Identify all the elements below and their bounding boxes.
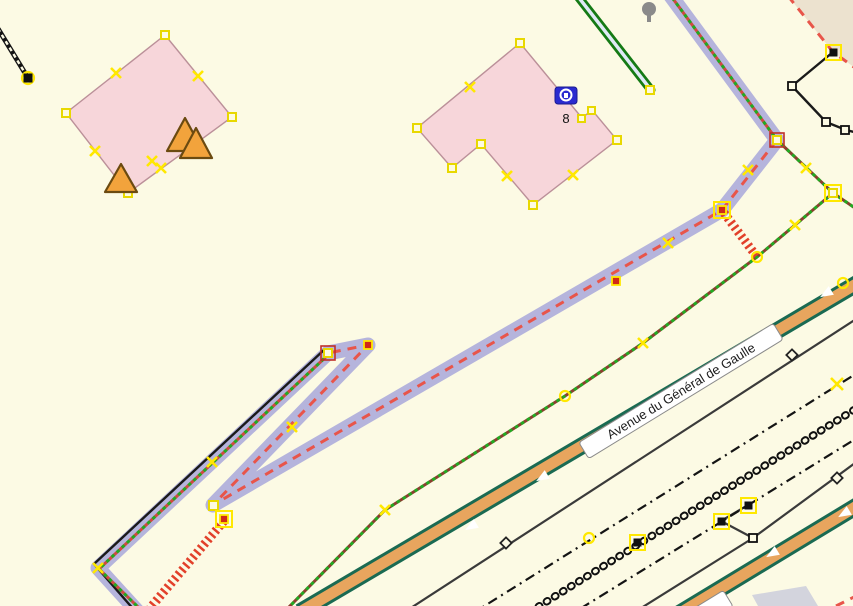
railway-end-node[interactable] <box>22 72 34 84</box>
housenumber-icon[interactable] <box>555 87 577 104</box>
map-canvas[interactable]: 8 Avenue du Général de Gaulle Avenue du … <box>0 0 853 606</box>
green-path-node[interactable] <box>646 86 654 94</box>
housenumber-text: 8 <box>562 111 569 126</box>
